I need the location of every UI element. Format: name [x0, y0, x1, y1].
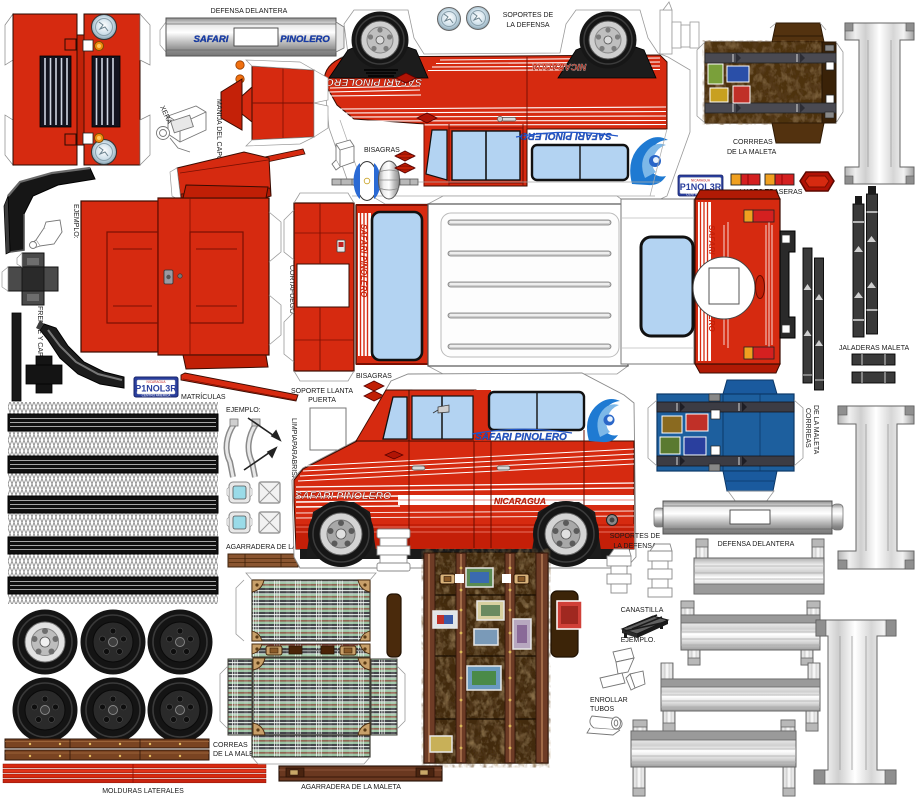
svg-text:NICARAGUA: NICARAGUA	[691, 179, 711, 183]
svg-text:NICARAGUA: NICARAGUA	[532, 62, 587, 72]
svg-text:ENROLLAR: ENROLLAR	[590, 697, 628, 704]
svg-text:SAFARI: SAFARI	[707, 225, 716, 255]
svg-text:AGARRADERA DE LA MALETA: AGARRADERA DE LA MALETA	[301, 784, 401, 791]
svg-text:SAFARI PINOLERO: SAFARI PINOLERO	[520, 130, 612, 141]
svg-text:NICARAGUA: NICARAGUA	[494, 496, 546, 506]
svg-text:CORRREAS: CORRREAS	[733, 139, 773, 146]
svg-text:PINOLERO: PINOLERO	[280, 34, 330, 45]
svg-text:PUERTA: PUERTA	[308, 397, 336, 404]
svg-text:NICARAGUA: NICARAGUA	[147, 380, 167, 384]
svg-text:SAFARI PINOLERO: SAFARI PINOLERO	[295, 490, 391, 502]
svg-text:MATRÍCULAS: MATRÍCULAS	[181, 392, 226, 401]
svg-text:SOPORTES DE: SOPORTES DE	[610, 533, 661, 540]
svg-text:MOLDURAS LATERALES: MOLDURAS LATERALES	[102, 788, 184, 795]
svg-text:DEFENSA DELANTERA: DEFENSA DELANTERA	[211, 8, 288, 15]
svg-text:P1NOL3R: P1NOL3R	[135, 384, 177, 394]
svg-text:MANIJA DEL CAPO: MANIJA DEL CAPO	[215, 99, 222, 162]
svg-text:FRENTE Y CAPO: FRENTE Y CAPO	[36, 306, 43, 363]
svg-text:SAFARI PINOLERO: SAFARI PINOLERO	[359, 224, 368, 298]
svg-text:CANASTILLA: CANASTILLA	[621, 607, 664, 614]
svg-text:EJEMPLO.: EJEMPLO.	[621, 637, 656, 644]
svg-text:JALADERAS MALETA: JALADERAS MALETA	[839, 345, 910, 352]
svg-text:SAFARI: SAFARI	[194, 34, 229, 45]
svg-text:DE LA MALETA: DE LA MALETA	[812, 405, 819, 455]
svg-text:BISAGRAS: BISAGRAS	[364, 147, 400, 154]
svg-text:DE LA MALETA: DE LA MALETA	[727, 149, 777, 156]
svg-text:EJEMPLO:: EJEMPLO:	[72, 204, 79, 239]
svg-text:EJEMPLO:: EJEMPLO:	[226, 407, 261, 414]
svg-text:SOPORTES DE: SOPORTES DE	[503, 12, 554, 19]
svg-text:TUBOS: TUBOS	[590, 706, 614, 713]
svg-text:BISAGRAS: BISAGRAS	[356, 373, 392, 380]
svg-text:SAFARI PINOLERO: SAFARI PINOLERO	[475, 432, 567, 443]
svg-text:CORREAS: CORREAS	[213, 742, 248, 749]
svg-text:DEFENSA DELANTERA: DEFENSA DELANTERA	[718, 541, 795, 548]
svg-text:LA DEFENSA: LA DEFENSA	[506, 22, 550, 29]
svg-text:SOPORTE LLANTA: SOPORTE LLANTA	[291, 388, 353, 395]
svg-text:CENTRO AMERICA: CENTRO AMERICA	[142, 394, 172, 398]
svg-text:CORRREAS: CORRREAS	[804, 408, 811, 448]
